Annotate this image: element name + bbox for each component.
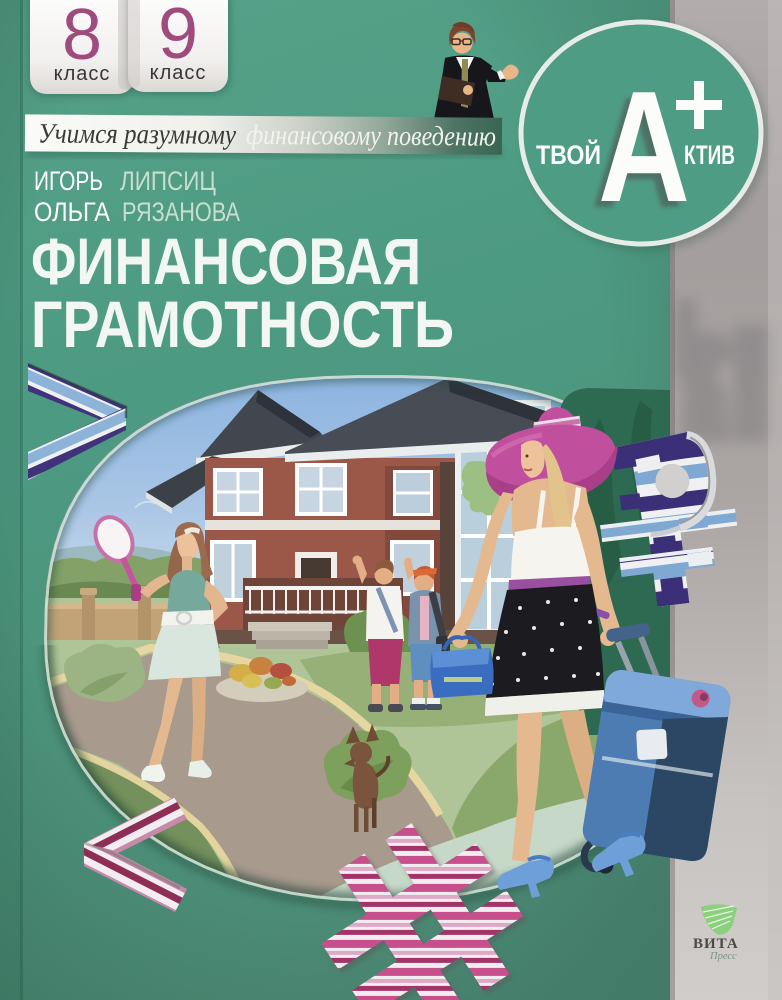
svg-text:ИГОРЬ: ИГОРЬ	[34, 166, 103, 196]
svg-text:финансовому поведению: финансовому поведению	[246, 120, 496, 153]
svg-text:КТИВ: КТИВ	[684, 140, 735, 170]
svg-text:ВИТА: ВИТА	[693, 936, 739, 952]
svg-text:РЯЗАНОВА: РЯЗАНОВА	[122, 197, 240, 227]
svg-text:ТВОЙ: ТВОЙ	[536, 139, 601, 170]
svg-text:ОЛЬГА: ОЛЬГА	[34, 197, 110, 227]
svg-text:класс: класс	[54, 63, 111, 85]
svg-text:Учимся разумному: Учимся разумному	[38, 118, 237, 150]
svg-text:Пресс: Пресс	[709, 951, 737, 962]
svg-text:класс: класс	[150, 62, 207, 84]
svg-text:ГРАМОТНОСТЬ: ГРАМОТНОСТЬ	[31, 287, 454, 361]
svg-text:ЛИПСИЦ: ЛИПСИЦ	[120, 166, 216, 196]
svg-text:А: А	[598, 59, 690, 235]
